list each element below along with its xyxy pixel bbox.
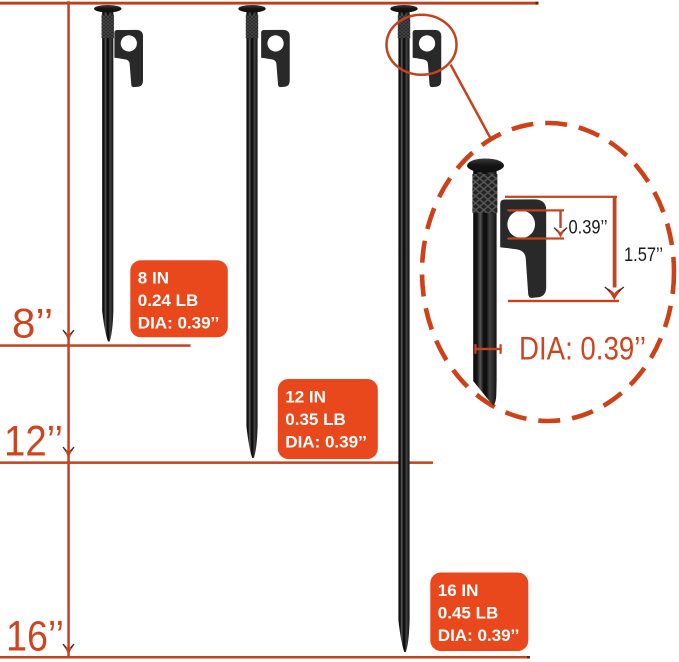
svg-text:0.45 LB: 0.45 LB xyxy=(438,603,498,622)
svg-text:12 IN: 12 IN xyxy=(285,387,326,406)
svg-text:0.35 LB: 0.35 LB xyxy=(285,410,345,429)
svg-text:8 IN: 8 IN xyxy=(138,269,169,288)
svg-text:0.39’’: 0.39’’ xyxy=(569,216,608,238)
svg-text:16 IN: 16 IN xyxy=(438,581,479,600)
svg-text:DIA: 0.39’’: DIA: 0.39’’ xyxy=(438,626,520,645)
svg-text:DIA: 0.39’’: DIA: 0.39’’ xyxy=(285,432,367,451)
svg-text:16’’: 16’’ xyxy=(6,613,64,661)
svg-text:DIA: 0.39’’: DIA: 0.39’’ xyxy=(519,331,646,367)
svg-text:12’’: 12’’ xyxy=(4,418,63,466)
svg-text:DIA: 0.39’’: DIA: 0.39’’ xyxy=(138,314,220,333)
svg-text:8’’: 8’’ xyxy=(12,300,53,347)
svg-text:1.57’’: 1.57’’ xyxy=(624,244,663,266)
svg-text:0.24 LB: 0.24 LB xyxy=(138,291,198,310)
